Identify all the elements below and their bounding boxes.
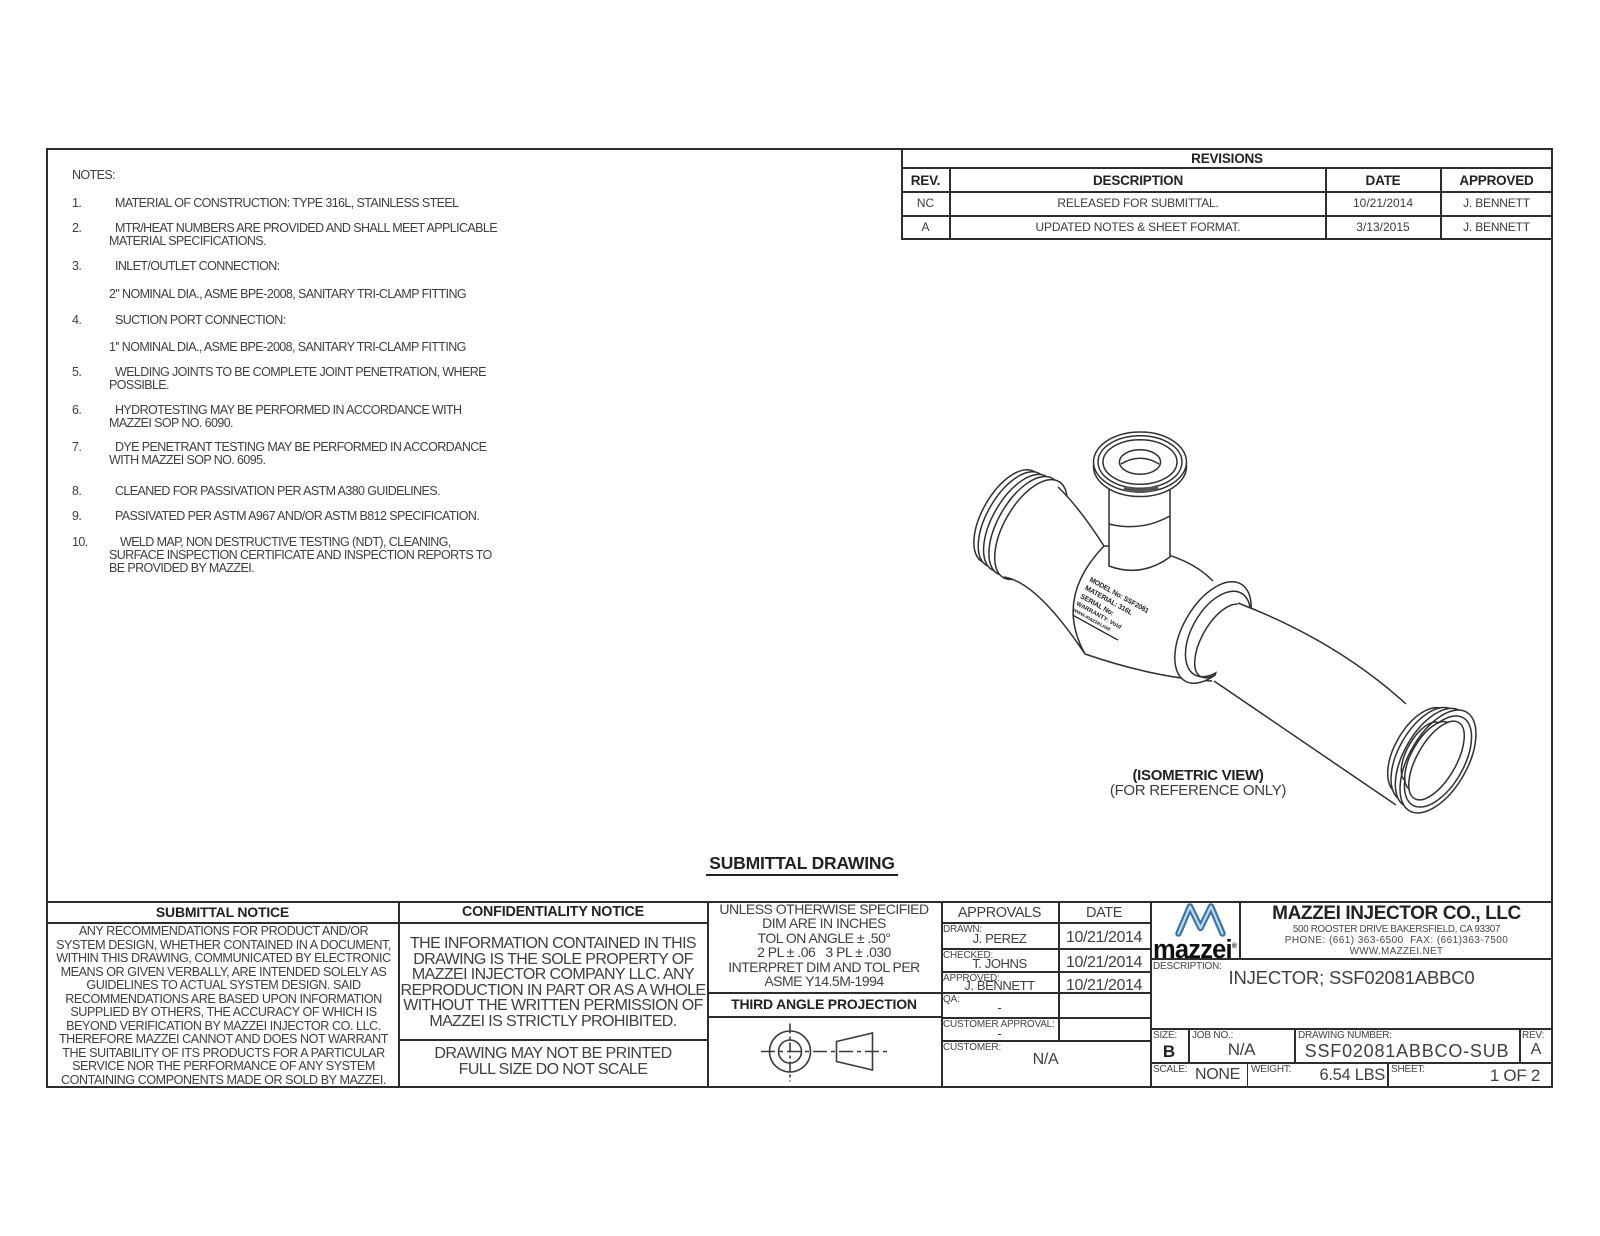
svg-text:(FOR REFERENCE ONLY): (FOR REFERENCE ONLY) [1110,782,1287,799]
